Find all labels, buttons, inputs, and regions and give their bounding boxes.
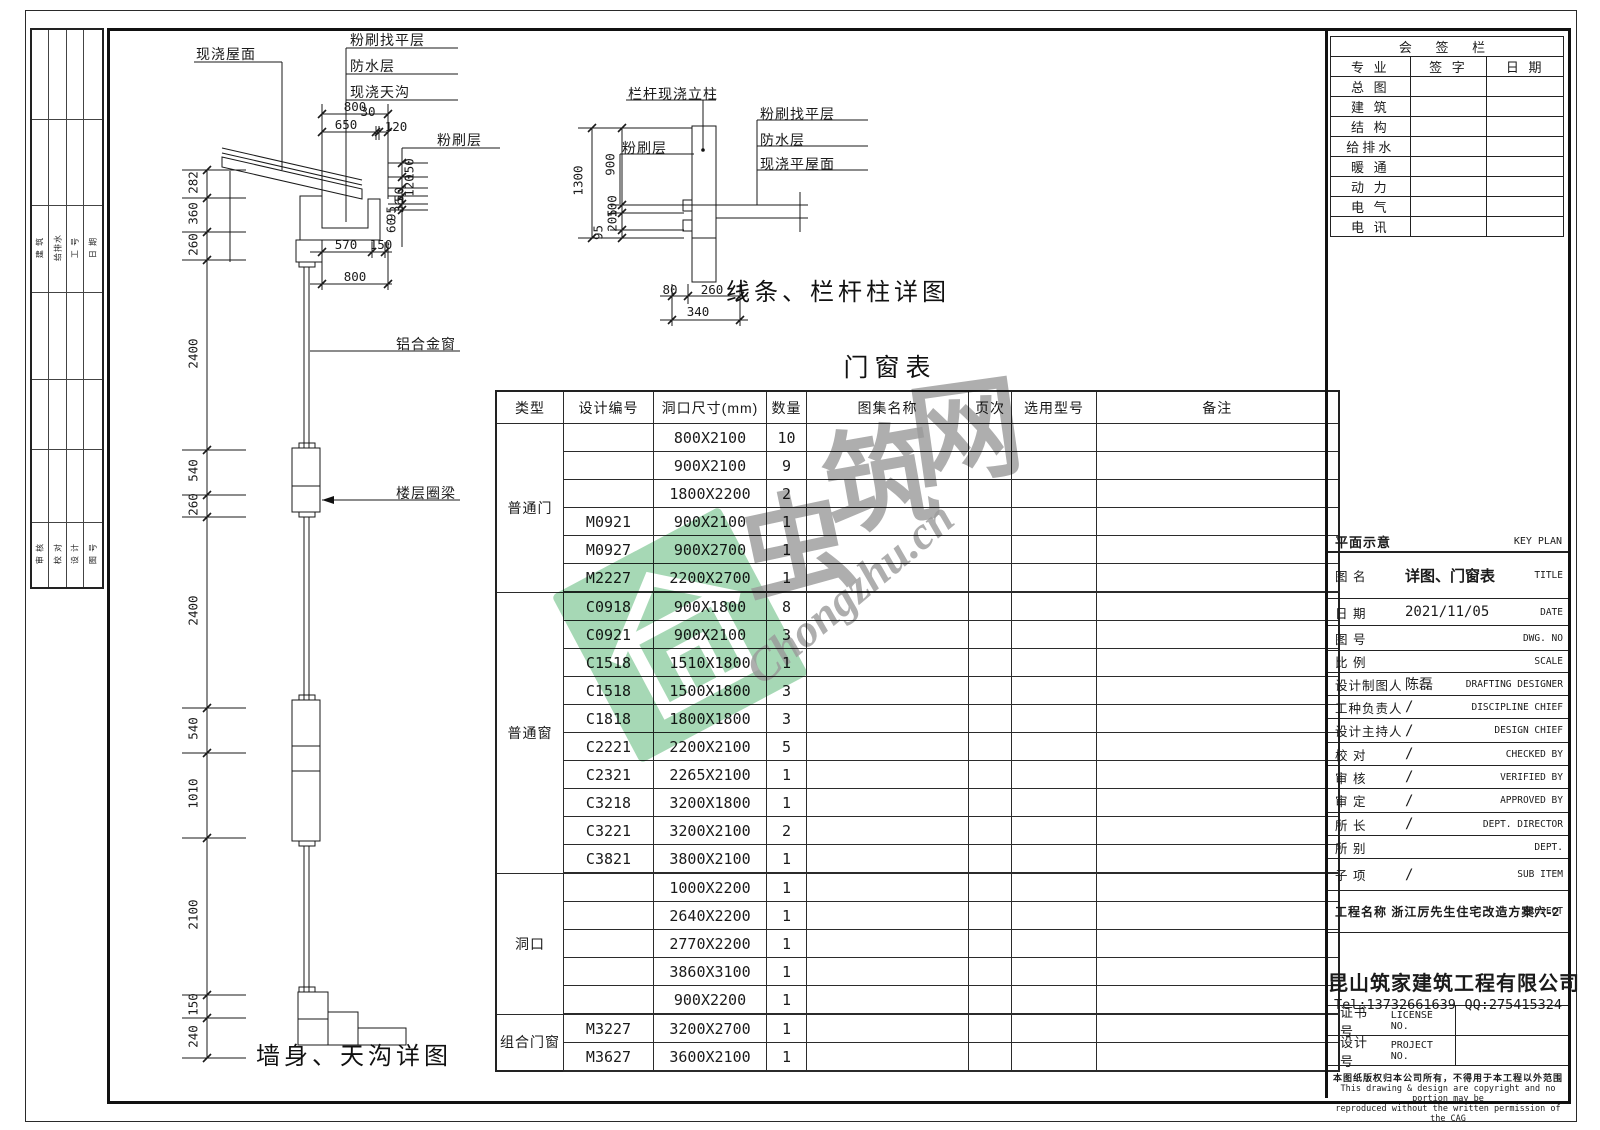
- schedule-page-cell: [969, 705, 1012, 733]
- schedule-model-cell: [1012, 536, 1097, 564]
- schedule-code-cell: [564, 902, 654, 930]
- railing-dim: 80: [656, 282, 684, 297]
- railing-label-waterproof: 防水层: [760, 130, 805, 150]
- schedule-size-cell: 3200X2700: [654, 1014, 767, 1043]
- tb-en: CHECKED BY: [1506, 749, 1563, 760]
- tb-cn: 工种负责人: [1335, 698, 1405, 717]
- schedule-atlas-cell: [807, 480, 969, 508]
- tb-en: DESIGN CHIEF: [1494, 725, 1563, 736]
- schedule-remark-cell: [1097, 733, 1339, 761]
- key-plan-row: 平面示意 KEY PLAN: [1328, 531, 1568, 552]
- sign-row-label: 暖 通: [1331, 157, 1411, 177]
- project-name: 工程名称 浙江厉先生住宅改造方案六-2: [1335, 903, 1523, 920]
- tb-cn: 设计主持人: [1335, 721, 1405, 740]
- schedule-remark-cell: [1097, 1014, 1339, 1043]
- schedule-remark-cell: [1097, 930, 1339, 958]
- sign-cell: [1410, 197, 1487, 217]
- title-block-rows: 图 名 详图、门窗表 TITLE 日 期 2021/11/05 DATE 图 号…: [1328, 552, 1568, 1100]
- schedule-size-cell: 1000X2200: [654, 873, 767, 902]
- schedule-code-cell: C1518: [564, 649, 654, 677]
- company-tel: Tel:13732661639: [1334, 997, 1456, 1013]
- schedule-row: M0921900X21001: [496, 508, 1339, 536]
- tb-cn: 设计制图人: [1335, 675, 1405, 694]
- schedule-row: C18181800X18003: [496, 705, 1339, 733]
- railing-dim: 900: [603, 145, 618, 185]
- schedule-row: 普通门800X210010: [496, 424, 1339, 452]
- schedule-model-cell: [1012, 733, 1097, 761]
- schedule-model-cell: [1012, 817, 1097, 845]
- schedule-atlas-cell: [807, 761, 969, 789]
- copyright-block: 本图纸版权归本公司所有，不得用于本工程以外范围 This drawing & d…: [1328, 1065, 1568, 1100]
- tb-cn: 校 对: [1335, 745, 1405, 764]
- tb-en: DRAFTING DESIGNER: [1466, 679, 1563, 690]
- schedule-model-cell: [1012, 789, 1097, 817]
- schedule-code-cell: M0927: [564, 536, 654, 564]
- schedule-size-cell: 900X2100: [654, 452, 767, 480]
- edge-strip-line: [32, 292, 102, 293]
- tb-en: SUB ITEM: [1517, 869, 1563, 880]
- tb-val: /: [1405, 746, 1506, 762]
- wall-label-ring-beam: 楼层圈梁: [396, 483, 456, 503]
- schedule-code-cell: [564, 452, 654, 480]
- wall-detail-title: 墙身、天沟详图: [256, 1036, 452, 1071]
- schedule-code-cell: M3227: [564, 1014, 654, 1043]
- schedule-row: C38213800X21001: [496, 845, 1339, 874]
- schedule-header-1: 设计编号: [564, 391, 654, 424]
- schedule-row: 2640X22001: [496, 902, 1339, 930]
- schedule-atlas-cell: [807, 902, 969, 930]
- schedule-qty-cell: 8: [767, 592, 807, 621]
- schedule-row: C32183200X18001: [496, 789, 1339, 817]
- tb-cn: 子 项: [1335, 865, 1405, 884]
- schedule-row: C23212265X21001: [496, 761, 1339, 789]
- wall-dim: 1010: [186, 774, 201, 814]
- edge-strip-label: 给排水: [53, 213, 64, 283]
- schedule-type-cell: 普通门: [496, 424, 564, 593]
- company-block: 昆山筑家建筑工程有限公司 Tel:13732661639 QQ:27541532…: [1328, 932, 1568, 1005]
- schedule-qty-cell: 1: [767, 564, 807, 593]
- schedule-page-cell: [969, 733, 1012, 761]
- railing-label-plaster: 粉刷层: [622, 138, 667, 158]
- tb-cn: 图 名: [1335, 566, 1405, 585]
- schedule-remark-cell: [1097, 536, 1339, 564]
- schedule-header-3: 数量: [767, 391, 807, 424]
- schedule-qty-cell: 1: [767, 508, 807, 536]
- schedule-page-cell: [969, 592, 1012, 621]
- schedule-code-cell: [564, 958, 654, 986]
- title-block-row-design-chief: 设计主持人 / DESIGN CHIEF: [1328, 718, 1568, 742]
- schedule-code-cell: C3221: [564, 817, 654, 845]
- sign-cell: [1410, 217, 1487, 237]
- title-block-row-dwgno: 图 号 DWG. NO: [1328, 625, 1568, 650]
- schedule-qty-cell: 1: [767, 845, 807, 874]
- project-no-label-en: PROJECT NO.: [1391, 1040, 1455, 1062]
- title-block-row-checked: 校 对 / CHECKED BY: [1328, 742, 1568, 765]
- sign-cell: [1487, 217, 1564, 237]
- sign-col-signature: 签 字: [1410, 57, 1487, 77]
- schedule-page-cell: [969, 564, 1012, 593]
- door-window-table: 类型设计编号洞口尺寸(mm)数量图集名称页次选用型号备注普通门800X21001…: [495, 390, 1340, 1072]
- schedule-remark-cell: [1097, 424, 1339, 452]
- tb-en: DEPT.: [1534, 842, 1563, 853]
- schedule-page-cell: [969, 930, 1012, 958]
- schedule-page-cell: [969, 817, 1012, 845]
- tb-val: 2021/11/05: [1405, 604, 1540, 620]
- schedule-qty-cell: 1: [767, 761, 807, 789]
- company-qq: QQ:275415324: [1464, 997, 1562, 1013]
- sign-row-label: 电 气: [1331, 197, 1411, 217]
- schedule-size-cell: 900X2200: [654, 986, 767, 1015]
- schedule-atlas-cell: [807, 649, 969, 677]
- schedule-size-cell: 3800X2100: [654, 845, 767, 874]
- schedule-code-cell: [564, 424, 654, 452]
- schedule-model-cell: [1012, 621, 1097, 649]
- schedule-size-cell: 1500X1800: [654, 677, 767, 705]
- schedule-remark-cell: [1097, 480, 1339, 508]
- edge-strip-line: [32, 449, 102, 450]
- tb-cn: 所 别: [1335, 838, 1405, 857]
- schedule-size-cell: 900X2100: [654, 508, 767, 536]
- edge-strip-label: 建 筑: [35, 213, 46, 283]
- schedule-atlas-cell: [807, 733, 969, 761]
- schedule-page-cell: [969, 677, 1012, 705]
- wall-dim: 2100: [186, 895, 201, 935]
- tb-val: 陈磊: [1405, 674, 1466, 694]
- wall-dim: 120: [381, 119, 411, 134]
- schedule-qty-cell: 9: [767, 452, 807, 480]
- sign-cell: [1410, 97, 1487, 117]
- schedule-type-cell: 普通窗: [496, 592, 564, 873]
- schedule-header-7: 备注: [1097, 391, 1339, 424]
- schedule-model-cell: [1012, 480, 1097, 508]
- sign-row-label: 结 构: [1331, 117, 1411, 137]
- schedule-model-cell: [1012, 564, 1097, 593]
- schedule-code-cell: C0918: [564, 592, 654, 621]
- schedule-qty-cell: 1: [767, 1043, 807, 1072]
- edge-strip-label: 校 对: [53, 519, 64, 589]
- schedule-qty-cell: 1: [767, 536, 807, 564]
- schedule-row: 3860X31001: [496, 958, 1339, 986]
- schedule-header-5: 页次: [969, 391, 1012, 424]
- copyright-en-2: reproduced without the written permissio…: [1328, 1104, 1568, 1124]
- schedule-remark-cell: [1097, 789, 1339, 817]
- wall-dim: 240: [186, 1017, 201, 1057]
- schedule-remark-cell: [1097, 958, 1339, 986]
- wall-dim: 260: [186, 485, 201, 525]
- project-no-row: 设计号 PROJECT NO.: [1328, 1035, 1568, 1065]
- schedule-page-cell: [969, 536, 1012, 564]
- schedule-qty-cell: 3: [767, 621, 807, 649]
- title-block-row-director: 所 长 / DEPT. DIRECTOR: [1328, 812, 1568, 835]
- wall-dim: 540: [186, 709, 201, 749]
- schedule-size-cell: 900X2700: [654, 536, 767, 564]
- schedule-model-cell: [1012, 705, 1097, 733]
- schedule-atlas-cell: [807, 592, 969, 621]
- schedule-qty-cell: 1: [767, 986, 807, 1015]
- schedule-qty-cell: 5: [767, 733, 807, 761]
- wall-dim: 60: [384, 206, 399, 246]
- schedule-model-cell: [1012, 1014, 1097, 1043]
- sign-cell: [1487, 177, 1564, 197]
- railing-label-post: 栏杆现浇立柱: [628, 84, 718, 104]
- schedule-code-cell: C2321: [564, 761, 654, 789]
- schedule-code-cell: C1818: [564, 705, 654, 733]
- tb-val: /: [1405, 867, 1517, 883]
- schedule-remark-cell: [1097, 621, 1339, 649]
- schedule-page-cell: [969, 958, 1012, 986]
- railing-dim: 1300: [571, 161, 586, 201]
- sign-cell: [1410, 177, 1487, 197]
- schedule-remark-cell: [1097, 677, 1339, 705]
- tb-cn: 审 定: [1335, 791, 1405, 810]
- wall-label-alu-window: 铝合金窗: [396, 334, 456, 354]
- schedule-qty-cell: 1: [767, 930, 807, 958]
- schedule-model-cell: [1012, 845, 1097, 874]
- tb-val: /: [1405, 723, 1494, 739]
- schedule-size-cell: 3860X3100: [654, 958, 767, 986]
- tb-en: SCALE: [1534, 656, 1563, 667]
- sign-cell: [1410, 77, 1487, 97]
- wall-dim: 2400: [186, 591, 201, 631]
- schedule-remark-cell: [1097, 452, 1339, 480]
- schedule-model-cell: [1012, 930, 1097, 958]
- schedule-size-cell: 3600X2100: [654, 1043, 767, 1072]
- schedule-model-cell: [1012, 761, 1097, 789]
- schedule-row: 洞口1000X22001: [496, 873, 1339, 902]
- schedule-qty-cell: 1: [767, 1014, 807, 1043]
- drawing-sheet: 建 筑 给排水 工 号 日 期 审 核 校 对 设 计 图 号: [0, 0, 1600, 1130]
- schedule-remark-cell: [1097, 592, 1339, 621]
- sign-cell: [1487, 117, 1564, 137]
- schedule-atlas-cell: [807, 845, 969, 874]
- title-block: 会 签 栏 专 业 签 字 日 期 总 图 建 筑 结 构 给排水 暖 通 动 …: [1325, 28, 1568, 1098]
- schedule-size-cell: 1510X1800: [654, 649, 767, 677]
- sign-cell: [1410, 117, 1487, 137]
- schedule-qty-cell: 3: [767, 705, 807, 733]
- schedule-header-4: 图集名称: [807, 391, 969, 424]
- schedule-model-cell: [1012, 873, 1097, 902]
- schedule-size-cell: 800X2100: [654, 424, 767, 452]
- title-block-row-discipline-chief: 工种负责人 / DISCIPLINE CHIEF: [1328, 695, 1568, 718]
- schedule-header-2: 洞口尺寸(mm): [654, 391, 767, 424]
- schedule-atlas-cell: [807, 677, 969, 705]
- schedule-model-cell: [1012, 649, 1097, 677]
- wall-dim: 260: [186, 225, 201, 265]
- schedule-atlas-cell: [807, 930, 969, 958]
- schedule-row: C15181500X18003: [496, 677, 1339, 705]
- title-block-row-scale: 比 例 SCALE: [1328, 650, 1568, 672]
- tb-en: DEPT. DIRECTOR: [1483, 819, 1563, 830]
- schedule-model-cell: [1012, 1043, 1097, 1072]
- edge-strip: 建 筑 给排水 工 号 日 期 审 核 校 对 设 计 图 号: [30, 28, 104, 589]
- schedule-row: 1800X22002: [496, 480, 1339, 508]
- schedule-row: M22272200X27001: [496, 564, 1339, 593]
- schedule-size-cell: 900X2100: [654, 621, 767, 649]
- schedule-code-cell: C0921: [564, 621, 654, 649]
- schedule-atlas-cell: [807, 452, 969, 480]
- copyright-cn: 本图纸版权归本公司所有，不得用于本工程以外范围: [1328, 1071, 1568, 1084]
- schedule-page-cell: [969, 1043, 1012, 1072]
- schedule-model-cell: [1012, 592, 1097, 621]
- title-block-row-subitem: 子 项 / SUB ITEM: [1328, 858, 1568, 890]
- schedule-code-cell: [564, 873, 654, 902]
- tb-en: DISCIPLINE CHIEF: [1471, 702, 1563, 713]
- schedule-atlas-cell: [807, 705, 969, 733]
- edge-strip-line: [66, 30, 67, 587]
- railing-dim: 260: [692, 282, 732, 297]
- tb-val: 详图、门窗表: [1405, 565, 1534, 586]
- schedule-type-cell: 洞口: [496, 873, 564, 1014]
- sign-table: 会 签 栏 专 业 签 字 日 期 总 图 建 筑 结 构 给排水 暖 通 动 …: [1330, 36, 1564, 237]
- wall-dim: 650: [320, 117, 372, 132]
- title-block-row-approved: 审 定 / APPROVED BY: [1328, 788, 1568, 812]
- schedule-model-cell: [1012, 677, 1097, 705]
- wall-dim: 570: [322, 237, 370, 252]
- wall-dim: 800: [322, 269, 388, 284]
- schedule-model-cell: [1012, 902, 1097, 930]
- sign-cell: [1410, 157, 1487, 177]
- company-name: 昆山筑家建筑工程有限公司: [1328, 967, 1568, 996]
- schedule-row: 900X21009: [496, 452, 1339, 480]
- schedule-remark-cell: [1097, 761, 1339, 789]
- title-block-row-date: 日 期 2021/11/05 DATE: [1328, 598, 1568, 625]
- railing-detail-title: 线条、栏杆柱详图: [726, 272, 950, 307]
- tb-cn: 日 期: [1335, 603, 1405, 622]
- schedule-page-cell: [969, 452, 1012, 480]
- schedule-page-cell: [969, 508, 1012, 536]
- sign-row-label: 电 讯: [1331, 217, 1411, 237]
- schedule-page-cell: [969, 902, 1012, 930]
- schedule-remark-cell: [1097, 1043, 1339, 1072]
- schedule-row: 普通窗C0918900X18008: [496, 592, 1339, 621]
- schedule-page-cell: [969, 845, 1012, 874]
- tb-cn: 所 长: [1335, 815, 1405, 834]
- railing-dim: 205: [605, 201, 620, 241]
- schedule-row: 组合门窗M32273200X27001: [496, 1014, 1339, 1043]
- schedule-atlas-cell: [807, 789, 969, 817]
- sign-table-title: 会 签 栏: [1331, 37, 1564, 57]
- schedule-row: M36273600X21001: [496, 1043, 1339, 1072]
- schedule-page-cell: [969, 873, 1012, 902]
- schedule-size-cell: 900X1800: [654, 592, 767, 621]
- schedule-qty-cell: 10: [767, 424, 807, 452]
- railing-dim: 95: [591, 213, 606, 253]
- sign-row-label: 给排水: [1331, 137, 1411, 157]
- schedule-code-cell: [564, 480, 654, 508]
- schedule-code-cell: [564, 930, 654, 958]
- sign-cell: [1487, 137, 1564, 157]
- wall-label-cast-roof: 现浇屋面: [196, 44, 256, 64]
- schedule-atlas-cell: [807, 1014, 969, 1043]
- edge-strip-line: [32, 379, 102, 380]
- schedule-page-cell: [969, 761, 1012, 789]
- schedule-page-cell: [969, 789, 1012, 817]
- schedule-size-cell: 3200X1800: [654, 789, 767, 817]
- railing-label-flat-roof: 现浇平屋面: [760, 154, 835, 174]
- schedule-row: C32213200X21002: [496, 817, 1339, 845]
- copyright-en-1: This drawing & design are copyright and …: [1328, 1084, 1568, 1104]
- schedule-qty-cell: 3: [767, 677, 807, 705]
- schedule-model-cell: [1012, 958, 1097, 986]
- sign-col-date: 日 期: [1487, 57, 1564, 77]
- edge-strip-label: 图 号: [88, 519, 99, 589]
- schedule-header-6: 选用型号: [1012, 391, 1097, 424]
- edge-strip-label: 审 核: [35, 519, 46, 589]
- tb-val: /: [1405, 793, 1500, 809]
- sign-cell: [1487, 157, 1564, 177]
- schedule-qty-cell: 2: [767, 817, 807, 845]
- schedule-qty-cell: 1: [767, 958, 807, 986]
- schedule-model-cell: [1012, 986, 1097, 1015]
- schedule-size-cell: 2770X2200: [654, 930, 767, 958]
- schedule-atlas-cell: [807, 958, 969, 986]
- schedule-qty-cell: 1: [767, 873, 807, 902]
- schedule-page-cell: [969, 986, 1012, 1015]
- schedule-remark-cell: [1097, 508, 1339, 536]
- title-block-row-dept: 所 别 DEPT.: [1328, 835, 1568, 858]
- schedule-header-0: 类型: [496, 391, 564, 424]
- sign-row-label: 建 筑: [1331, 97, 1411, 117]
- schedule-size-cell: 2265X2100: [654, 761, 767, 789]
- schedule-model-cell: [1012, 424, 1097, 452]
- schedule-remark-cell: [1097, 705, 1339, 733]
- schedule-row: 900X22001: [496, 986, 1339, 1015]
- schedule-atlas-cell: [807, 508, 969, 536]
- tb-en: DWG. NO: [1523, 633, 1563, 644]
- edge-strip-label: 设 计: [70, 519, 81, 589]
- schedule-qty-cell: 1: [767, 649, 807, 677]
- schedule-remark-cell: [1097, 986, 1339, 1015]
- project-no-label-cn: 设计号: [1340, 1032, 1381, 1070]
- title-block-row-title: 图 名 详图、门窗表 TITLE: [1328, 552, 1568, 598]
- wall-dim: 30: [356, 104, 380, 119]
- edge-strip-line: [48, 30, 49, 587]
- schedule-atlas-cell: [807, 564, 969, 593]
- railing-dim: 340: [678, 304, 718, 319]
- tb-en: DATE: [1540, 607, 1563, 618]
- schedule-code-cell: C1518: [564, 677, 654, 705]
- schedule-atlas-cell: [807, 424, 969, 452]
- schedule-size-cell: 2640X2200: [654, 902, 767, 930]
- schedule-remark-cell: [1097, 902, 1339, 930]
- schedule-size-cell: 3200X2100: [654, 817, 767, 845]
- tb-cn: 图 号: [1335, 629, 1405, 648]
- schedule-code-cell: C3218: [564, 789, 654, 817]
- schedule-page-cell: [969, 621, 1012, 649]
- tb-en: VERIFIED BY: [1500, 772, 1563, 783]
- railing-label-leveling: 粉刷找平层: [760, 104, 835, 124]
- sign-cell: [1410, 137, 1487, 157]
- schedule-title: 门窗表: [790, 348, 990, 384]
- schedule-row: M0927900X27001: [496, 536, 1339, 564]
- key-plan-label-en: KEY PLAN: [1514, 536, 1562, 547]
- title-block-row-drafter: 设计制图人 陈磊 DRAFTING DESIGNER: [1328, 672, 1568, 695]
- schedule-row: 2770X22001: [496, 930, 1339, 958]
- schedule-atlas-cell: [807, 873, 969, 902]
- tb-val: /: [1405, 816, 1483, 832]
- schedule-remark-cell: [1097, 564, 1339, 593]
- schedule-qty-cell: 1: [767, 789, 807, 817]
- schedule-code-cell: M3627: [564, 1043, 654, 1072]
- schedule-page-cell: [969, 480, 1012, 508]
- wall-label-plaster: 粉刷层: [437, 130, 482, 150]
- door-window-schedule: 类型设计编号洞口尺寸(mm)数量图集名称页次选用型号备注普通门800X21001…: [495, 390, 1340, 1072]
- tb-cn: 审 核: [1335, 768, 1405, 787]
- schedule-remark-cell: [1097, 845, 1339, 874]
- schedule-size-cell: 1800X2200: [654, 480, 767, 508]
- title-block-row-verified: 审 核 / VERIFIED BY: [1328, 765, 1568, 788]
- sign-col-discipline: 专 业: [1331, 57, 1411, 77]
